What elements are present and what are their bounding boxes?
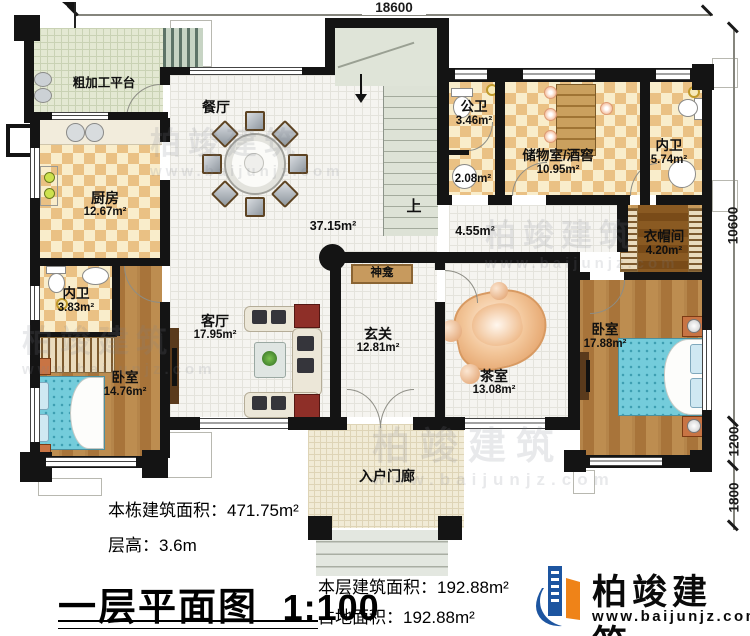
ceiling-lamp xyxy=(544,108,557,121)
dimension-top: 18600 xyxy=(362,0,426,15)
floor-plan-sheet: 粗加工平台 餐厅 37.15m² 厨房 12.67m² 上 4.55m² 公卫 … xyxy=(0,0,750,636)
room-name: 茶室 xyxy=(454,368,534,384)
wall xyxy=(288,417,347,430)
wall xyxy=(340,252,580,263)
toilet-bowl xyxy=(678,99,698,117)
round-column xyxy=(319,244,346,271)
wall xyxy=(449,150,469,155)
wall xyxy=(546,195,630,205)
room-area: 13.08m² xyxy=(454,384,534,397)
room-name: 餐厅 xyxy=(186,99,246,115)
room-name: 储物室/酒窖 xyxy=(498,148,618,164)
dimension-right-mid: 1200 xyxy=(727,423,742,461)
footprint-label: 占地面积： xyxy=(318,608,403,627)
room-name: 入户门廊 xyxy=(330,468,444,484)
wall xyxy=(690,450,712,472)
ceiling-lamp xyxy=(544,130,557,143)
room-label-bedroom-right: 卧室 17.88m² xyxy=(568,322,642,351)
room-label-dining: 餐厅 xyxy=(186,99,246,115)
wall xyxy=(640,68,650,205)
room-name: 粗加工平台 xyxy=(48,76,160,90)
building-area-line: 本栋建筑面积：471.75m² xyxy=(108,496,299,521)
brand-logo: 柏竣建筑 www.baijunjz.com xyxy=(528,562,743,632)
window xyxy=(30,286,40,320)
wall xyxy=(142,450,168,478)
dining-chair xyxy=(288,154,308,174)
dining-chair xyxy=(245,197,265,217)
floor-height-value: 3.6m xyxy=(159,536,197,555)
wall xyxy=(413,417,465,430)
wall xyxy=(580,272,590,280)
kitchen-sink xyxy=(85,123,104,142)
footprint-line: 占地面积：192.88m² xyxy=(318,603,475,628)
wall xyxy=(325,18,335,75)
window xyxy=(590,457,662,466)
window xyxy=(52,112,108,120)
room-area: 4.55m² xyxy=(446,224,504,238)
ceiling-lamp xyxy=(600,102,613,115)
sofa-cushion xyxy=(271,310,286,324)
dining-chair xyxy=(245,111,265,131)
room-area: 12.81m² xyxy=(338,342,418,355)
tea-stone-ball xyxy=(490,282,508,300)
room-area: 14.76m² xyxy=(88,386,162,399)
platform-grill xyxy=(163,28,203,67)
sofa-cushion xyxy=(252,396,267,410)
room-label-tea: 茶室 13.08m² xyxy=(454,368,534,397)
window xyxy=(200,418,288,429)
plan-title-underline xyxy=(58,620,318,629)
room-name: 神龛 xyxy=(351,267,413,280)
room-label-inner-bath-left: 内卫 3.83m² xyxy=(46,286,106,315)
room-label-platform: 粗加工平台 xyxy=(48,76,160,90)
window-sill xyxy=(573,470,595,494)
room-name: 客厅 xyxy=(175,313,255,329)
room-name: 内卫 xyxy=(46,286,106,302)
wash-basin xyxy=(82,267,109,285)
wall xyxy=(488,195,512,205)
dimension-right-main: 10600 xyxy=(726,199,741,253)
wall xyxy=(656,195,712,205)
tv xyxy=(586,360,590,392)
stairs-up-label: 上 xyxy=(402,198,426,215)
room-label-storage: 储物室/酒窖 10.95m² xyxy=(498,148,618,177)
window xyxy=(190,67,302,75)
shrine-label: 神龛 xyxy=(351,267,413,280)
sofa-cushion xyxy=(297,358,314,373)
window xyxy=(702,330,712,410)
building-area-value: 471.75m² xyxy=(227,501,299,520)
room-label-dining-area: 37.15m² xyxy=(300,219,366,233)
nightstand-lamp xyxy=(687,419,701,433)
wall xyxy=(160,180,170,266)
stair-landing xyxy=(335,28,437,86)
brand-name: 柏竣建筑 xyxy=(592,564,743,636)
wall xyxy=(545,417,580,430)
floor-area-value: 192.88m² xyxy=(437,578,509,597)
ceiling-lamp xyxy=(544,86,557,99)
side-table xyxy=(294,394,320,418)
dimension-right-low: 1800 xyxy=(727,479,742,517)
room-name: 公卫 xyxy=(448,99,500,115)
wall xyxy=(160,118,170,142)
floor-height-label: 层高： xyxy=(108,536,159,555)
hall-area-label: 4.55m² xyxy=(446,224,504,238)
side-table xyxy=(294,304,320,328)
wall xyxy=(438,516,462,540)
room-label-living: 客厅 17.95m² xyxy=(175,313,255,342)
room-area: 37.15m² xyxy=(300,219,366,233)
room-label-inner-bath-right: 内卫 5.74m² xyxy=(640,138,698,167)
building-logo-icon xyxy=(528,564,584,630)
window xyxy=(656,69,690,80)
wall xyxy=(564,450,586,472)
stove-burner xyxy=(44,172,55,183)
wall xyxy=(437,195,452,205)
brand-logo-icon xyxy=(528,564,584,635)
wall xyxy=(624,272,702,280)
window-sill xyxy=(166,432,212,478)
sofa-cushion xyxy=(297,336,314,351)
room-area: 2.08m² xyxy=(448,173,498,186)
footprint-value: 192.88m² xyxy=(403,608,475,627)
wall xyxy=(308,516,332,540)
room-area: 4.20m² xyxy=(624,245,704,258)
kitchen-sink xyxy=(66,123,85,142)
sofa-cushion xyxy=(271,396,286,410)
room-name: 卧室 xyxy=(88,370,162,386)
wall xyxy=(24,15,34,123)
entry-steps xyxy=(316,530,448,576)
room-name: 厨房 xyxy=(55,190,155,206)
floor-area-line: 本层建筑面积：192.88m² xyxy=(318,573,509,598)
lazy-susan xyxy=(244,153,264,173)
wall xyxy=(112,266,120,336)
flag-marker xyxy=(62,2,74,12)
wall xyxy=(435,252,445,270)
stair-arrow-stem xyxy=(360,74,362,94)
room-label-foyer: 玄关 12.81m² xyxy=(338,326,418,355)
wall xyxy=(30,258,170,266)
room-label-bedroom-left: 卧室 14.76m² xyxy=(88,370,162,399)
floor-area-label: 本层建筑面积： xyxy=(318,578,437,597)
room-name: 卧室 xyxy=(568,322,642,338)
cellar-stair xyxy=(556,84,596,156)
nightstand-lamp xyxy=(687,319,701,333)
room-label-porch: 入户门廊 xyxy=(330,468,444,484)
building-area-label: 本栋建筑面积： xyxy=(108,501,227,520)
room-label-kitchen: 厨房 12.67m² xyxy=(55,190,155,219)
stair-arrow-head xyxy=(355,94,367,109)
room-label-cloakroom: 衣帽间 4.20m² xyxy=(624,229,704,258)
room-name: 玄关 xyxy=(338,326,418,342)
up-text: 上 xyxy=(402,198,426,215)
wall xyxy=(325,18,449,28)
room-area: 17.95m² xyxy=(175,329,255,342)
window xyxy=(30,148,40,198)
window xyxy=(523,69,595,80)
window xyxy=(30,388,40,442)
room-area: 5.74m² xyxy=(640,154,698,167)
window xyxy=(455,69,487,80)
room-name: 衣帽间 xyxy=(624,229,704,245)
tv xyxy=(172,348,177,386)
window xyxy=(465,418,545,429)
room-area: 17.88m² xyxy=(568,338,642,351)
wall xyxy=(33,332,117,337)
flag-marker-pole xyxy=(74,2,76,28)
room-area: 3.46m² xyxy=(448,115,500,128)
room-area: 10.95m² xyxy=(498,164,618,177)
wall xyxy=(435,302,445,422)
floor-height-line: 层高：3.6m xyxy=(108,531,197,556)
room-area: 12.67m² xyxy=(55,206,155,219)
room-area: 3.83m² xyxy=(46,302,106,315)
brand-website: www.baijunjz.com xyxy=(592,608,750,625)
room-label-public-bath: 公卫 3.46m² xyxy=(448,99,500,128)
stove-burner xyxy=(44,188,55,199)
wall xyxy=(165,417,200,430)
window xyxy=(46,457,136,467)
wash-area-label: 2.08m² xyxy=(448,173,498,186)
room-name: 内卫 xyxy=(640,138,698,154)
plant xyxy=(262,351,277,366)
dining-chair xyxy=(202,154,222,174)
